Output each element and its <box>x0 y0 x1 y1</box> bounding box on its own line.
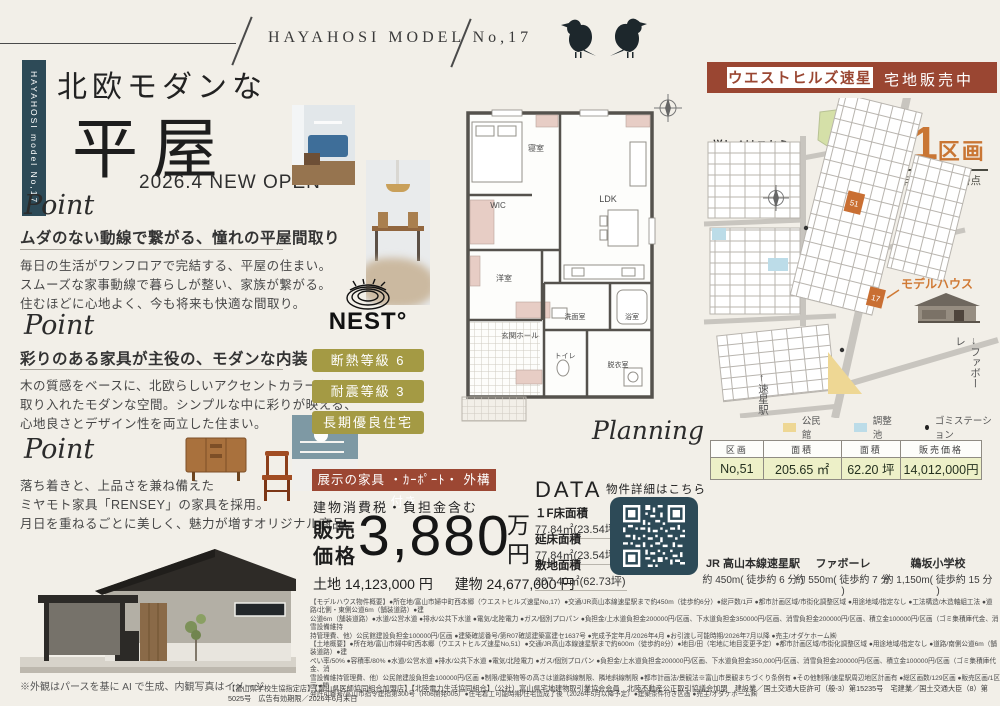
fineprint-line: ぺい率/50% ●容積率/80% ●水道/公営水道 ●排水/公共下水道 ●電気/… <box>310 658 1000 675</box>
point3-body-line: ミヤモト家具「RENSEY」の家具を採用。 <box>20 496 358 515</box>
legend-label-gomi: ゴミステーション <box>935 413 1000 441</box>
lot-table-header: 面積 <box>763 441 841 458</box>
access-caption-school: 鵜坂小学校 約 1,150m( 徒歩約 15 分 ) <box>883 555 993 597</box>
lot-table-cell: 62.20 坪 <box>841 458 900 480</box>
model-house-icon <box>914 293 980 322</box>
price-label-1: 販売 <box>313 518 357 544</box>
sales-banner-name: ウエストヒルズ速星 <box>728 67 872 88</box>
point1-body: 毎日の生活がワンフロアで完結する、平屋の住まい。 スムーズな家事動線で暮らしが整… <box>20 257 332 314</box>
lot-table-cell: 14,012,000円 <box>901 458 982 480</box>
nest-logo-icon <box>340 278 396 312</box>
room-label-ldk: LDK <box>599 194 617 204</box>
fineprint-line: 公道6m（舗装道路）●水道/公営水道 ●排水/公共下水道 ●電気/北陸電力 ●ガ… <box>310 616 1000 633</box>
price-unit-yen: 円 <box>507 540 530 569</box>
lot-table-row: No,51 205.65 ㎡ 62.20 坪 14,012,000円 <box>711 458 982 480</box>
station-direction-label: ←速星駅 <box>756 373 771 419</box>
access-distance: 約 550m( 徒歩約 7 分 ) <box>793 571 893 597</box>
lot-table-header: 面積 <box>841 441 900 458</box>
fineprint-line: 持管理費、他）公民館建設負担金100000円/区画 ●建築確認番号/第R07確認… <box>310 633 1000 641</box>
point1-body-line: スムーズな家事動線で暮らしが整い、家族が繋がる。 <box>20 276 332 295</box>
legend-dot-gomi <box>925 425 929 430</box>
pond-area <box>712 228 726 240</box>
point1-divider <box>20 249 283 250</box>
access-name: JR 高山本線速星駅 <box>700 555 806 571</box>
planning-script: Planning <box>592 416 704 445</box>
room-label-toilet: トイレ <box>555 353 576 360</box>
point2-heading: 彩りのある家具が主役の、モダンな内装 <box>20 347 308 369</box>
badge-longlife: 長期優良住宅 <box>312 411 424 434</box>
nest-brand: NEST° <box>322 308 414 336</box>
header-title: HAYAHOSI MODEL No,17 <box>268 29 532 47</box>
floorplan-image: 寝室 WIC LDK 洋室 玄関ホール 洗面室 浴室 トイレ 脱衣室 <box>432 70 692 450</box>
room-label-bath: 浴室 <box>625 312 639 321</box>
exterior-house-image <box>20 543 296 675</box>
point2-divider <box>20 369 283 370</box>
fineprint-line: 【モデルハウス物件概要】●所在地/富山市婦中町西本郷（ウエストヒルズ速星No,1… <box>310 599 1000 616</box>
lot-table: 区画 面積 面積 販売価格 No,51 205.65 ㎡ 62.20 坪 14,… <box>710 440 982 480</box>
sideboard-image <box>184 436 248 482</box>
lot-table-cell: 205.65 ㎡ <box>763 458 841 480</box>
birds-icon <box>548 8 660 58</box>
price-unit: 万 円 <box>507 511 530 569</box>
price-label: 販売 価格 <box>313 518 357 570</box>
property-qr-code <box>610 497 698 575</box>
access-name: 鵜坂小学校 <box>883 555 993 571</box>
room-label-datsui: 脱衣室 <box>608 360 629 369</box>
badge-insulation: 断熱等級 6 <box>312 349 424 372</box>
lot-table-header: 販売価格 <box>901 441 982 458</box>
point1-body-line: 毎日の生活がワンフロアで完結する、平屋の住まい。 <box>20 257 332 276</box>
legend-label-hall: 公民館 <box>802 413 826 441</box>
price-value: 3,880 <box>358 503 511 569</box>
header-slash-left <box>231 17 252 66</box>
point2-script: Point <box>24 310 94 341</box>
pond-area <box>768 258 788 271</box>
room-label-genkan: 玄関ホール <box>501 330 539 340</box>
point3-script: Point <box>24 434 94 465</box>
point2-body-line: 取り入れたモダンな空間。シンプルな中に彩りが映える、 <box>20 396 357 415</box>
sales-banner-name-box: ウエストヒルズ速星 <box>727 67 873 88</box>
lot-table-header: 区画 <box>711 441 764 458</box>
room-label-youshitsu: 洋室 <box>496 273 512 283</box>
flyer-page: HAYAHOSI MODEL No,17 HAYAHOSI model No,1… <box>0 0 1000 706</box>
access-distance: 約 1,150m( 徒歩約 15 分 ) <box>883 571 993 597</box>
point1-heading: ムダのない動線で繋がる、憧れの平屋間取り <box>20 226 340 248</box>
data-item-value: 207.40㎡(62.73坪) <box>535 573 627 591</box>
legend-swatch-hall <box>783 423 796 432</box>
room-label-senmen: 洗面室 <box>565 312 586 321</box>
favore-direction-label: →ファボーレ <box>953 336 983 398</box>
map-legend: 公民館 調整池 ゴミステーション <box>783 413 1000 441</box>
legend-label-pond: 調整池 <box>873 413 897 441</box>
included-badge: 展示の家具 ・ｶｰﾎﾟｰﾄ・ 外構付き <box>312 469 496 491</box>
access-name: ファボーレ <box>793 555 893 571</box>
point3-body-line: 月日を重ねるごとに美しく、魅力が増すオリジナル商品。 <box>20 515 358 534</box>
chair-image <box>257 449 297 503</box>
model-tag-label: HAYAHOSI model No,17 <box>29 71 39 204</box>
price-unit-man: 万 <box>507 511 530 540</box>
legend-swatch-pond <box>854 423 867 432</box>
sales-banner-status: 宅地販売中 <box>884 69 974 90</box>
header-rule <box>0 43 236 44</box>
price-label-2: 価格 <box>313 544 357 570</box>
badge-seismic: 耐震等級 3 <box>312 380 424 403</box>
footer-credentials: 【富山県学校生協指定店】【富山県医師協同組合加盟店】【北陸電力生活協同組合】（公… <box>228 684 998 704</box>
point1-script: Point <box>24 190 94 221</box>
access-caption-station: JR 高山本線速星駅 約 450m( 徒歩約 6 分 ) <box>700 555 806 586</box>
fineprint-line: 【土地概要】●所在地/富山市婦中町西本郷（ウエストヒルズ速星No,51）●交通/… <box>310 641 1000 658</box>
property-qr-label: 物件詳細はこちら <box>606 481 706 497</box>
access-caption-favore: ファボーレ 約 550m( 徒歩約 7 分 ) <box>793 555 893 597</box>
room-label-wic: WIC <box>490 201 506 210</box>
model-house-label: モデルハウス <box>901 276 973 291</box>
room-label-bedroom: 寝室 <box>528 143 544 153</box>
access-distance: 約 450m( 徒歩約 6 分 ) <box>700 571 806 586</box>
compass-icon <box>654 94 682 122</box>
data-title: DATA <box>535 477 602 503</box>
lot-table-cell: No,51 <box>711 458 764 480</box>
interior-photo-living <box>292 105 355 185</box>
point2-body-line: 木の質感をベースに、北欧らしいアクセントカラーを <box>20 377 357 396</box>
price-land: 土地 14,123,000 円 <box>313 576 433 592</box>
